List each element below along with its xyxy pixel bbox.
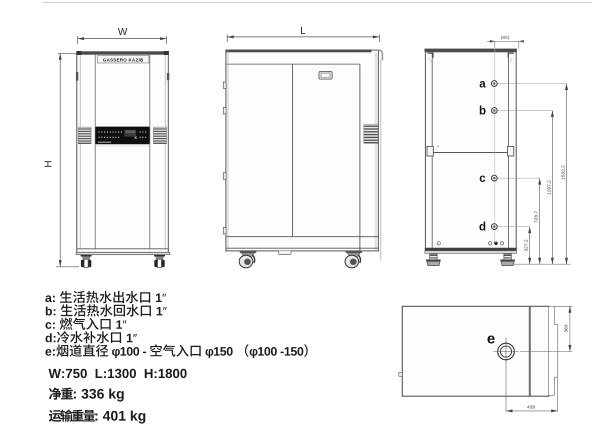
svg-text:439: 439 (527, 404, 535, 410)
svg-text:1297.2: 1297.2 (546, 180, 552, 195)
svg-text:L: L (300, 26, 306, 37)
svg-text:W: W (118, 27, 128, 38)
svg-text:327.2: 327.2 (524, 239, 530, 251)
svg-text:383: 383 (564, 324, 570, 332)
svg-text:b: b (479, 105, 486, 117)
svg-text:d: d (479, 221, 486, 233)
svg-text:728.7: 728.7 (534, 211, 540, 223)
svg-text:a: a (479, 78, 486, 90)
svg-text:c: c (479, 173, 486, 185)
svg-text:e: e (487, 331, 495, 348)
svg-text:H: H (44, 160, 55, 167)
svg-text:(80): (80) (501, 35, 510, 41)
svg-text:GASSERO KAZIB: GASSERO KAZIB (103, 57, 144, 62)
svg-text:1532.2: 1532.2 (560, 165, 566, 180)
